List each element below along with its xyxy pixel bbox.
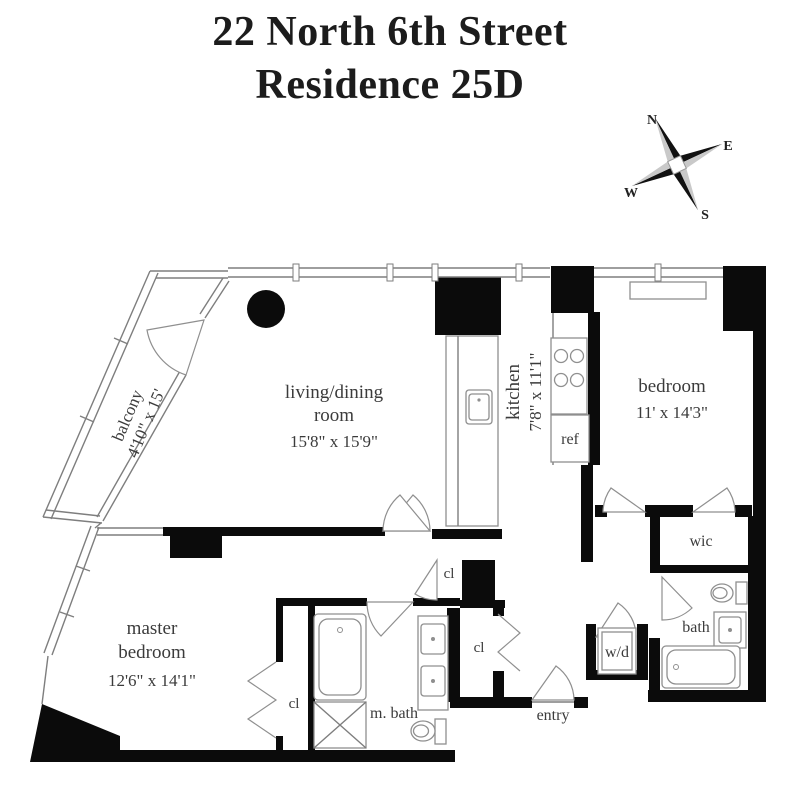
entry-label: entry — [537, 707, 570, 724]
toilet-tank-icon — [736, 582, 747, 604]
floor-plan-svg: N E W S — [0, 0, 800, 792]
master-closet-bifold-door — [248, 662, 276, 738]
fridge-label: ref — [561, 431, 579, 448]
wic-door-arc — [693, 488, 735, 512]
bath-label: bath — [682, 619, 710, 636]
closet-label-entry: cl — [474, 640, 485, 656]
closet-label-hall: cl — [444, 566, 455, 582]
compass-south-label: S — [701, 208, 709, 223]
washer-dryer-label: w/d — [605, 644, 629, 661]
column-icon — [247, 290, 285, 328]
master-bedroom-label: master — [127, 618, 178, 639]
compass-rose-icon: N E W S — [610, 97, 744, 232]
master-bath-door-arc — [367, 602, 413, 636]
kitchen-island-icon — [446, 336, 498, 526]
page-title: 22 North 6th Street Residence 25D — [0, 6, 780, 112]
master-bath-label: m. bath — [370, 705, 418, 722]
living-room-label: living/dining — [285, 382, 384, 403]
closet-label-master: cl — [289, 696, 300, 712]
hall-closet-door-arc — [415, 560, 437, 600]
living-room-label2: room — [314, 405, 354, 426]
title-residence: Residence 25D — [0, 59, 780, 112]
bedroom-door-arc — [603, 488, 645, 512]
bath-door-arc — [662, 577, 692, 620]
hall-closet-bifold-door — [498, 614, 520, 671]
bedroom-window-wall — [594, 264, 723, 299]
wic-label: wic — [689, 533, 712, 550]
bedroom-dims: 11' x 14'3" — [636, 403, 708, 422]
bedroom-label: bedroom — [638, 376, 706, 397]
title-address: 22 North 6th Street — [0, 6, 780, 59]
balcony-door-arc — [147, 320, 204, 375]
compass-east-label: E — [723, 139, 732, 154]
living-room-dims: 15'8" x 15'9" — [290, 432, 378, 451]
toilet-tank-icon — [435, 719, 446, 744]
radiator-icon — [630, 282, 706, 299]
compass-north-label: N — [647, 113, 657, 128]
master-bedroom-label2: bedroom — [118, 642, 186, 663]
kitchen-dims: 7'8" x 11'1" — [526, 353, 545, 432]
kitchen-label: kitchen — [503, 364, 524, 420]
floor-plan-page: 22 North 6th Street Residence 25D N E W … — [0, 0, 800, 792]
master-bedroom-dims: 12'6" x 14'1" — [108, 671, 196, 690]
entry-door-arc — [532, 666, 574, 700]
compass-west-label: W — [624, 186, 638, 201]
